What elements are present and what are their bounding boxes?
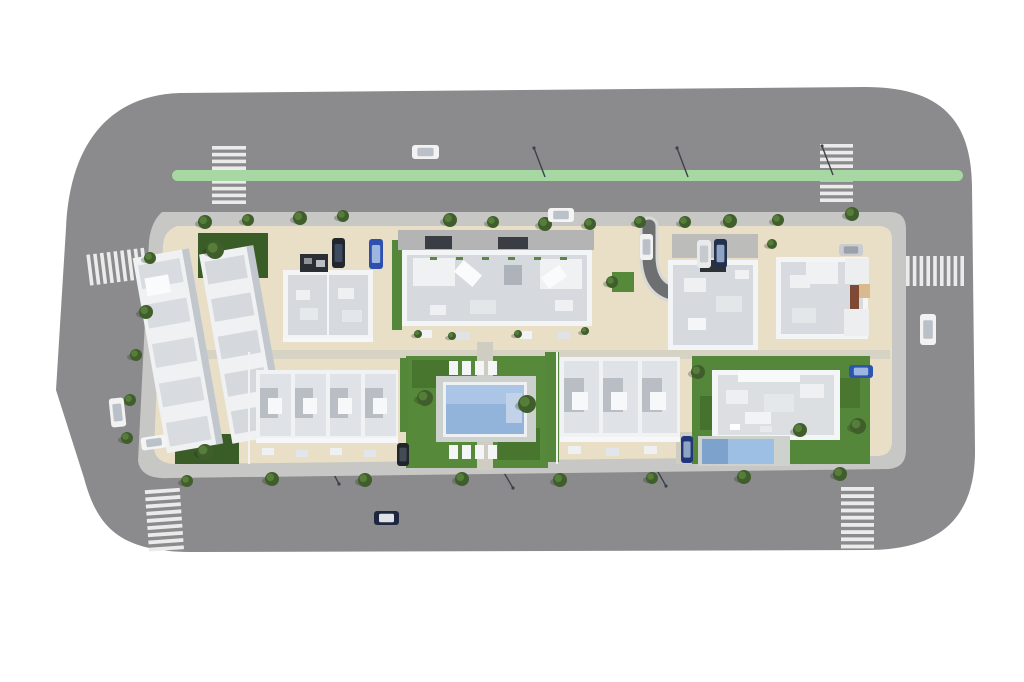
- car: [412, 145, 439, 159]
- car: [397, 443, 409, 466]
- car: [369, 239, 383, 269]
- car: [332, 238, 345, 268]
- car: [548, 208, 574, 222]
- apartment-block-north-east-b: [776, 257, 870, 339]
- car: [697, 240, 711, 268]
- bike-lane: [172, 170, 963, 181]
- crosswalk-south-west: [145, 488, 184, 552]
- car: [714, 239, 727, 268]
- car: [640, 234, 653, 260]
- car: [374, 511, 399, 525]
- car: [920, 314, 936, 345]
- townhouses-south-center: [560, 357, 680, 456]
- car: [839, 244, 863, 256]
- car: [849, 365, 873, 378]
- crosswalk-east: [906, 256, 964, 286]
- site-plan-canvas: [0, 0, 1024, 682]
- apartment-block-north-east-a: [668, 260, 758, 350]
- crosswalk-south-east: [841, 487, 874, 548]
- car: [109, 397, 127, 427]
- aerial-site-plan-render: [0, 0, 1024, 682]
- car: [681, 436, 693, 463]
